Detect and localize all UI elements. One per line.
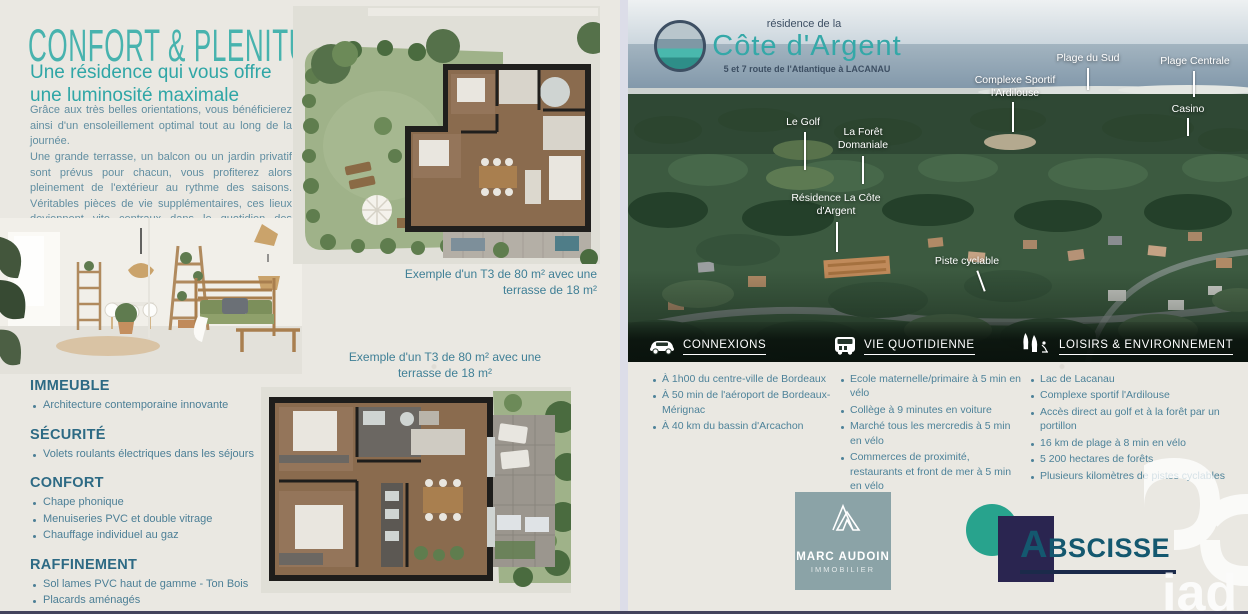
label-piste-cyclable: Piste cyclable [924,255,1010,268]
col-item: Ecole maternelle/primaire à 5 min en vél… [838,372,1024,401]
label-plage-centrale: Plage Centrale [1150,55,1240,68]
floorplan2-caption: Exemple d'un T3 de 80 m² avec une terras… [336,349,554,381]
abscisse-logo: ABSCISSE [958,498,1168,588]
mountain-icon [819,500,867,542]
col-item: À 40 km du bassin d'Arcachon [650,419,832,433]
label-residence: Résidence La Côte d'Argent [786,192,886,218]
band-loisirs: LOISIRS & ENVIRONNEMENT [1020,333,1233,355]
floorplan1-caption: Exemple d'un T3 de 80 m² avec une terras… [385,266,597,298]
col-item: Lac de Lacanau [1028,372,1246,386]
col-item: À 50 min de l'aéroport de Bordeaux-Mérig… [650,388,832,417]
marc-audoin-subtitle: IMMOBILIER [795,565,891,574]
band-label: VIE QUOTIDIENNE [864,339,975,355]
category-band: CONNEXIONS VIE QUOTIDIENNE LOISI [628,322,1248,362]
brochure-page: CONFORT & PLENITUDE Une résidence qui vo… [0,0,1248,614]
iad-watermark-logo: iad [1144,428,1248,611]
marc-audoin-name: MARC AUDOIN [795,551,891,563]
band-vie-quotidienne: VIE QUOTIDIENNE [833,336,975,355]
band-label: LOISIRS & ENVIRONNEMENT [1059,339,1233,355]
band-connexions: CONNEXIONS [648,338,766,355]
brand-name: Côte d'Argent [692,30,922,63]
left-panel: CONFORT & PLENITUDE Une résidence qui vo… [0,0,620,611]
column-connexions: À 1h00 du centre-ville de Bordeaux À 50 … [650,372,832,436]
label-casino: Casino [1158,103,1218,116]
col-item: Collège à 9 minutes en voiture [838,403,1024,417]
col-item: Marché tous les mercredis à 5 min en vél… [838,419,1024,448]
col-item: Commerces de proximité, restaurants et f… [838,450,1024,493]
floorplan-t3-terrace [261,387,571,593]
iad-text: iad [1162,564,1237,611]
label-complexe-sportif: Complexe Sportif l'Ardilouse [968,74,1062,100]
column-vie-quotidienne: Ecole maternelle/primaire à 5 min en vél… [838,372,1024,496]
trees-cyclist-icon [1020,333,1052,355]
label-la-foret: La Forêt Domaniale [826,126,900,152]
col-item: Complexe sportif l'Ardilouse [1028,388,1246,402]
brand-logo: résidence de la Côte d'Argent 5 et 7 rou… [646,8,926,88]
page-subtitle: Une résidence qui vous offre une luminos… [30,62,280,108]
marc-audoin-logo: MARC AUDOIN IMMOBILIER [795,492,891,590]
living-room-photo [0,218,302,374]
feature-item: Placards aménagés [30,592,320,609]
brand-address: 5 et 7 route de l'Atlantique à LACANAU [692,64,922,74]
col-item: À 1h00 du centre-ville de Bordeaux [650,372,832,386]
label-plage-du-sud: Plage du Sud [1048,52,1128,65]
band-label: CONNEXIONS [683,339,766,355]
intro-paragraph-1: Grâce aux très belles orientations, vous… [30,103,292,150]
van-icon [833,336,857,355]
right-panel: résidence de la Côte d'Argent 5 et 7 rou… [628,0,1248,611]
car-icon [648,338,676,355]
abscisse-initial: A [1020,524,1048,566]
floorplan-t3-garden [293,6,600,264]
brand-top-line: résidence de la [704,18,904,30]
